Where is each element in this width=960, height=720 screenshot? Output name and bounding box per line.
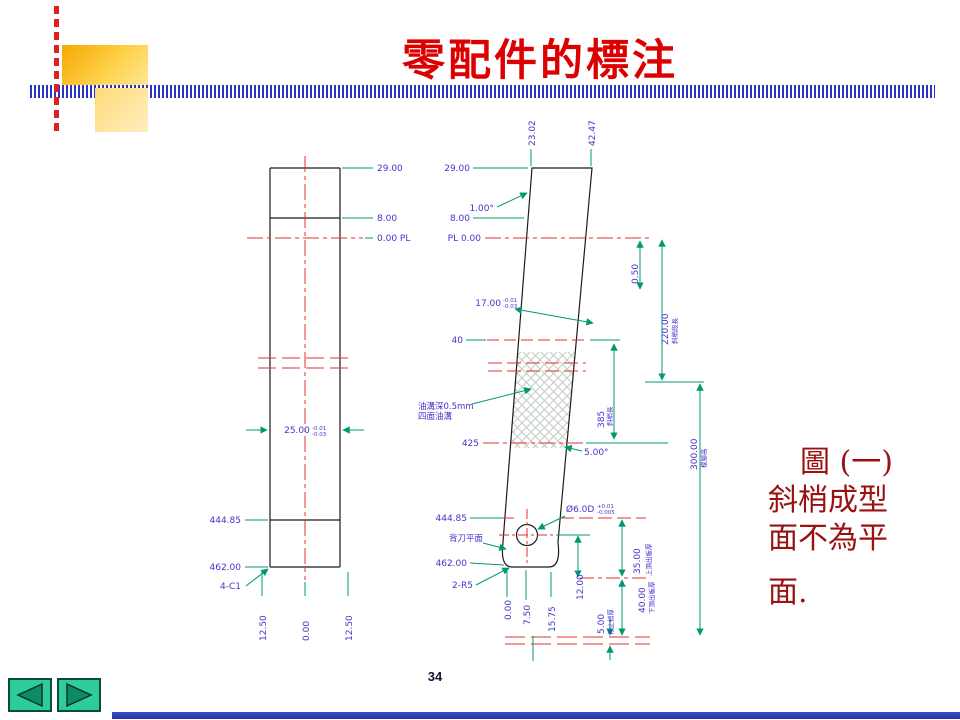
left-dim-25-tol-lower: -0.03 — [312, 432, 327, 438]
right-dim-17-tol-lower: -0.03 — [503, 304, 518, 310]
left-base-right: 12.50 — [345, 615, 355, 641]
back-plane-note: 背刀平面 — [449, 533, 484, 544]
right-base-0: 0.00 — [504, 600, 514, 620]
right-dim-40b: 40.00 — [638, 587, 648, 613]
corner-radius-label: 2-R5 — [452, 581, 473, 591]
left-chamfer-label: 4-C1 — [220, 582, 241, 592]
right-dim-35: 35.00 — [633, 548, 643, 574]
right-dim-8: 8.00 — [450, 214, 470, 224]
right-dim-220: 220.00 — [661, 313, 671, 345]
right-dim-17: 17.00 — [475, 299, 501, 309]
left-dim-pl: 0.00 PL — [377, 234, 410, 244]
caption-line1: 圖 (一) — [768, 444, 943, 482]
left-dim-44485: 444.85 — [210, 516, 242, 526]
right-dim-12: 12.00 — [576, 574, 586, 600]
next-arrow-icon — [61, 680, 97, 710]
left-view-centerlines — [247, 156, 363, 580]
hole-tol-lower: -0.005 — [597, 510, 615, 516]
left-base-center: 0.00 — [302, 621, 312, 641]
yellow-square-light-decoration — [95, 88, 148, 132]
right-top-left-offset: 23.02 — [528, 120, 538, 146]
previous-slide-button[interactable] — [8, 678, 52, 712]
left-dim-25: 25.00 — [284, 426, 310, 436]
right-dim-300: 300.00 — [690, 438, 700, 470]
slide-title: 零配件的標注 — [160, 26, 920, 88]
right-dim-5: 5.00 — [597, 614, 607, 634]
caption-line2: 斜梢成型 — [768, 482, 943, 520]
right-dim-5-note: 停止梢厚 — [606, 609, 615, 636]
figure-caption: 圖 (一) 斜梢成型 面不為平 面. — [768, 444, 943, 612]
right-base-1575: 15.75 — [548, 606, 558, 632]
right-dim-385-note: 斜梢長 — [605, 406, 614, 426]
right-dim-300-note: 模腳高 — [699, 448, 708, 468]
page-number: 34 — [420, 669, 450, 684]
left-dim-8: 8.00 — [377, 214, 397, 224]
right-dim-pl: PL 0.00 — [448, 234, 482, 244]
left-dim-462: 462.00 — [210, 563, 242, 573]
right-dim-220-note: 斜梢段長 — [670, 318, 679, 345]
bottom-blue-bar-decoration — [112, 712, 960, 719]
oil-groove-hatch-area — [510, 352, 575, 448]
right-dim-050: 0.50 — [631, 264, 641, 284]
right-dim-29: 29.00 — [444, 164, 470, 174]
caption-line3: 面不為平 — [768, 520, 943, 558]
caption-line4: 面. — [768, 574, 943, 612]
previous-arrow-icon — [12, 680, 48, 710]
right-dim-462: 462.00 — [436, 559, 468, 569]
left-dim-29: 29.00 — [377, 164, 403, 174]
right-dim-40: 40 — [452, 336, 464, 346]
right-angle-1: 1.00° — [469, 204, 494, 214]
right-dim-44485: 444.85 — [436, 514, 468, 524]
right-base-75: 7.50 — [523, 605, 533, 625]
left-base-left: 12.50 — [259, 615, 269, 641]
oil-groove-note-line2: 四面油溝 — [418, 411, 453, 422]
right-dim-425: 425 — [462, 439, 479, 449]
hole-diameter-label: Ø6.0D — [566, 504, 594, 515]
right-top-right-offset: 42.47 — [588, 120, 598, 146]
right-dim-35-note: 上頂出板厚 — [644, 543, 653, 576]
right-angle-5: 5.00° — [584, 448, 609, 458]
left-view-dimension-lines — [245, 168, 373, 596]
oil-groove-note-line1: 油溝深0.5mm — [418, 401, 474, 412]
right-dim-40b-note: 下頂出板厚 — [647, 581, 656, 614]
next-slide-button[interactable] — [57, 678, 101, 712]
red-dashed-line-decoration — [54, 6, 59, 136]
